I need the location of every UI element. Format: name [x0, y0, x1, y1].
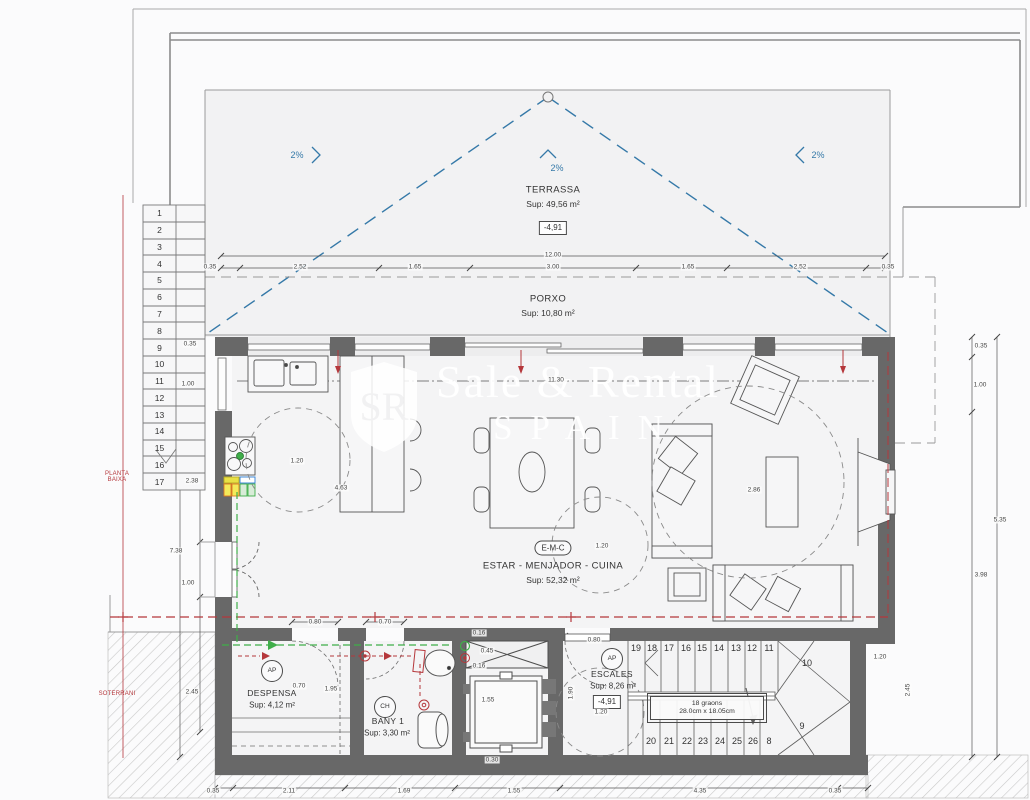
room-area-terrassa: Sup: 49,56 m²: [526, 199, 579, 209]
stair-step-number: 24: [715, 736, 725, 746]
dimension-label: 1.69: [397, 788, 412, 795]
dimension-label: 2.38: [185, 478, 200, 485]
chair: [474, 487, 489, 512]
slope-label: 2%: [811, 150, 824, 160]
dimension-label: 0.35: [203, 264, 218, 271]
room-area-porxo: Sup: 10,80 m²: [521, 308, 574, 318]
stair-step-number: 5: [143, 272, 176, 289]
dimension-label: 1.65: [681, 264, 696, 271]
room-label-porxo: PORXO: [530, 294, 566, 305]
dimension-label: 4.63: [334, 485, 349, 492]
level-label-planta-baixa: PLANTABAIXA: [105, 471, 129, 483]
recycle-bin: [248, 484, 255, 496]
stair-step-number: 14: [143, 423, 176, 440]
stair-step-number: 20: [646, 736, 656, 746]
dimension-label: 0.70: [378, 619, 393, 626]
stair-step-number: 16: [681, 643, 691, 653]
slope-label: 2%: [290, 150, 303, 160]
dimension-label: 1.90: [568, 686, 575, 701]
chair: [474, 428, 489, 453]
dimension-label: 2.45: [905, 683, 912, 698]
recycle-bin: [224, 484, 231, 496]
stair-step-number: 10: [802, 658, 812, 668]
stair-step-number: 8: [766, 736, 771, 746]
stair-step-number: 16: [143, 456, 176, 473]
chair: [585, 428, 600, 453]
room-code-emc: E-M-C: [534, 541, 571, 556]
dimension-label: 0.70: [292, 683, 307, 690]
room-area-despensa: Sup: 4,12 m²: [249, 701, 295, 710]
dimension-label: 0.80: [587, 637, 602, 644]
room-code-escales: AP: [601, 648, 623, 670]
room-label-escales: ESCALES: [591, 669, 633, 679]
dimension-label: 1.00: [181, 580, 196, 587]
dimension-label: 0.45: [480, 648, 495, 655]
stair-step-number: 4: [143, 255, 176, 272]
stair-step-number: 2: [143, 222, 176, 239]
stair-spec-note: 18 graons 28.0cm x 18.05cm: [650, 696, 764, 720]
roof-drain: [543, 92, 553, 102]
stair-step-number: 26: [748, 736, 758, 746]
dimension-label: 1.95: [324, 686, 339, 693]
recycle-bin: [232, 484, 239, 496]
stair-step-number: 12: [143, 389, 176, 406]
dimension-label: 12.00: [544, 252, 562, 259]
dimension-label: 1.00: [973, 382, 988, 389]
room-label-emc: ESTAR - MENJADOR - CUINA: [483, 561, 623, 572]
dimension-label: 3.00: [546, 264, 561, 271]
dimension-label: 2.52: [293, 264, 308, 271]
stair-step-number: 13: [143, 406, 176, 423]
stair-step-number: 11: [143, 373, 176, 390]
dimension-label: 7.38: [169, 548, 184, 555]
stair-step-number: 15: [143, 440, 176, 457]
dining-table: [490, 418, 574, 528]
room-level-terrassa: -4,91: [539, 217, 567, 235]
stove-knob: [237, 453, 244, 460]
toilet: [436, 714, 448, 746]
dimension-label: 0.16: [472, 630, 487, 637]
room-area-bany: Sup: 3,30 m²: [364, 729, 410, 738]
dimension-label: 0.30: [485, 757, 500, 764]
room-level-escales: -4,91: [593, 691, 621, 709]
dimension-label: 2.52: [793, 264, 808, 271]
room-code-despensa: AP: [261, 660, 283, 682]
stair-step-number: 11: [764, 643, 773, 653]
dimension-label: 2.11: [282, 788, 296, 795]
stair-step-number: 18: [647, 643, 657, 653]
stair-step-number: 15: [697, 643, 707, 653]
stair-step-number: 23: [698, 736, 708, 746]
stair-step-number: 7: [143, 306, 176, 323]
stair-step-number: 9: [799, 721, 804, 731]
stair-step-number: 17: [143, 473, 176, 490]
dimension-label: 0.35: [974, 343, 989, 350]
room-label-despensa: DESPENSA: [247, 688, 297, 698]
recycle-bin: [224, 477, 239, 483]
recycle-bin: [240, 484, 247, 496]
dimension-label: 11.30: [547, 377, 565, 384]
elevator: [463, 641, 556, 752]
dimension-label: 0.35: [183, 341, 198, 348]
dimension-label: 0.16: [472, 663, 487, 670]
chair: [585, 487, 600, 512]
level-label-soterrani: SOTERRANI: [99, 691, 136, 697]
stair-spec-line1: 18 graons: [692, 700, 722, 709]
stair-spec-line2: 28.0cm x 18.05cm: [679, 708, 735, 717]
stair-step-number: 12: [747, 643, 757, 653]
dimension-label: 2.86: [747, 487, 762, 494]
floorplan-page: SR Sale & Rental SPAIN TERRASSA Sup: 49,…: [0, 0, 1030, 800]
dimension-label: 1.55: [507, 788, 522, 795]
stair-step-number: 8: [143, 322, 176, 339]
dimension-label: 1.20: [594, 709, 609, 716]
stair-step-number: 3: [143, 239, 176, 256]
left-window: [218, 358, 226, 410]
room-code-bany: CH: [374, 696, 396, 718]
dimension-label: 0.35: [828, 788, 843, 795]
elevator-cab: [470, 676, 542, 748]
sink-basin: [290, 362, 316, 385]
stair-step-number: 22: [682, 736, 692, 746]
stair-step-number: 9: [143, 339, 176, 356]
tv: [858, 452, 890, 532]
dimension-label: 1.65: [408, 264, 423, 271]
left-stair-numbers: 1234567891011121314151617: [143, 205, 176, 490]
room-area-escales: Sup: 8,26 m²: [590, 682, 636, 691]
sliding-door-panel: [465, 343, 561, 347]
stair-step-number: 13: [731, 643, 741, 653]
slope-label: 2%: [550, 163, 563, 173]
dimension-label: 4.35: [693, 788, 708, 795]
dimension-label: 5.35: [993, 517, 1008, 524]
dimension-label: 1.00: [181, 381, 196, 388]
room-label-terrassa: TERRASSA: [526, 185, 580, 196]
dimension-label: 0.80: [308, 619, 323, 626]
sink-basin: [254, 360, 284, 386]
stair-step-number: 25: [732, 736, 742, 746]
room-label-bany: BANY 1: [372, 716, 404, 726]
coffee-table: [766, 457, 798, 527]
dimension-label: 0.35: [206, 788, 221, 795]
stair-step-number: 19: [631, 643, 641, 653]
room-area-emc: Sup: 52,32 m²: [526, 575, 579, 585]
dimension-label: 0.35: [881, 264, 896, 271]
stair-step-number: 1: [143, 205, 176, 222]
recycle-bin: [240, 477, 255, 483]
dimension-label: 3.98: [974, 572, 989, 579]
washbasin: [425, 650, 455, 676]
dimension-label: 1.20: [595, 543, 610, 550]
stair-step-number: 14: [714, 643, 724, 653]
dimension-label: 2.45: [185, 689, 200, 696]
dimension-label: 1.20: [290, 458, 305, 465]
stair-step-number: 6: [143, 289, 176, 306]
dimension-label: 1.20: [873, 654, 888, 661]
stair-step-number: 17: [664, 643, 674, 653]
dimension-label: 1.55: [481, 697, 496, 704]
stair-step-number: 21: [664, 736, 674, 746]
sliding-door-panel: [547, 349, 643, 353]
stair-step-number: 10: [143, 356, 176, 373]
